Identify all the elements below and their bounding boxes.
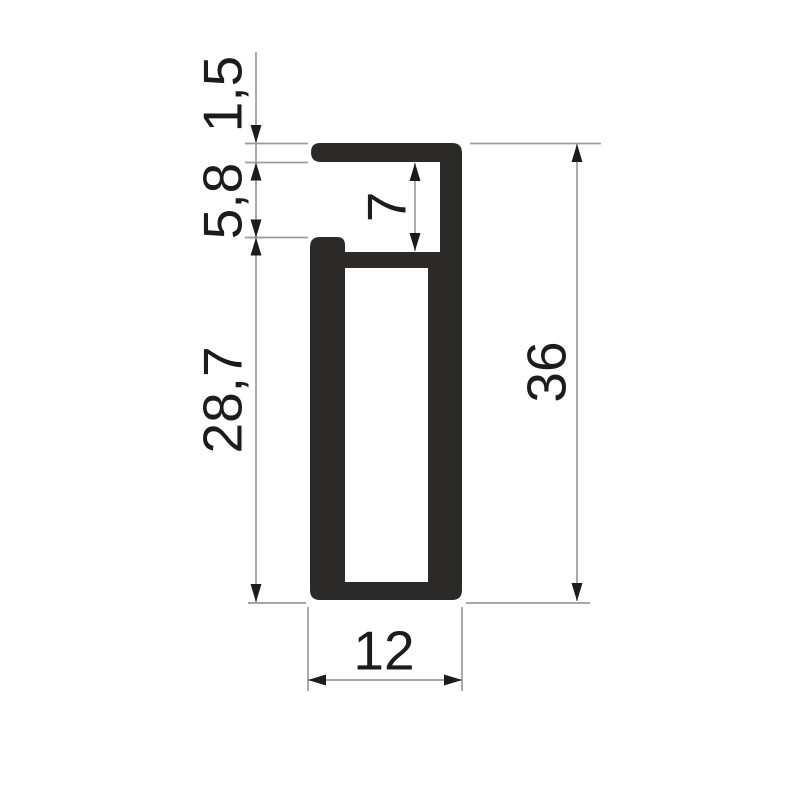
dimension-label-body-height: 28,7 — [191, 346, 253, 453]
arrowhead-left-icon — [308, 675, 326, 686]
arrowhead-right-icon — [444, 675, 462, 686]
dimension-label-flange-thickness: 1,5 — [191, 56, 253, 132]
extension-lines — [245, 144, 601, 692]
arrowhead-up-icon — [572, 144, 583, 162]
arrowhead-down-icon — [572, 583, 583, 601]
dimension-label-overall-height: 36 — [515, 341, 577, 402]
dimension-label-overall-width: 12 — [353, 619, 414, 681]
arrowhead-down-icon — [410, 233, 421, 251]
drawing-canvas: 1,5 5,8 28,7 7 36 12 — [0, 0, 800, 800]
arrowhead-down-icon — [251, 584, 262, 602]
dimension-label-channel-depth: 7 — [355, 192, 417, 223]
profile-technical-drawing: 1,5 5,8 28,7 7 36 12 — [0, 0, 800, 800]
dimension-label-step-height: 5,8 — [191, 163, 253, 239]
arrowhead-up-icon — [410, 163, 421, 181]
